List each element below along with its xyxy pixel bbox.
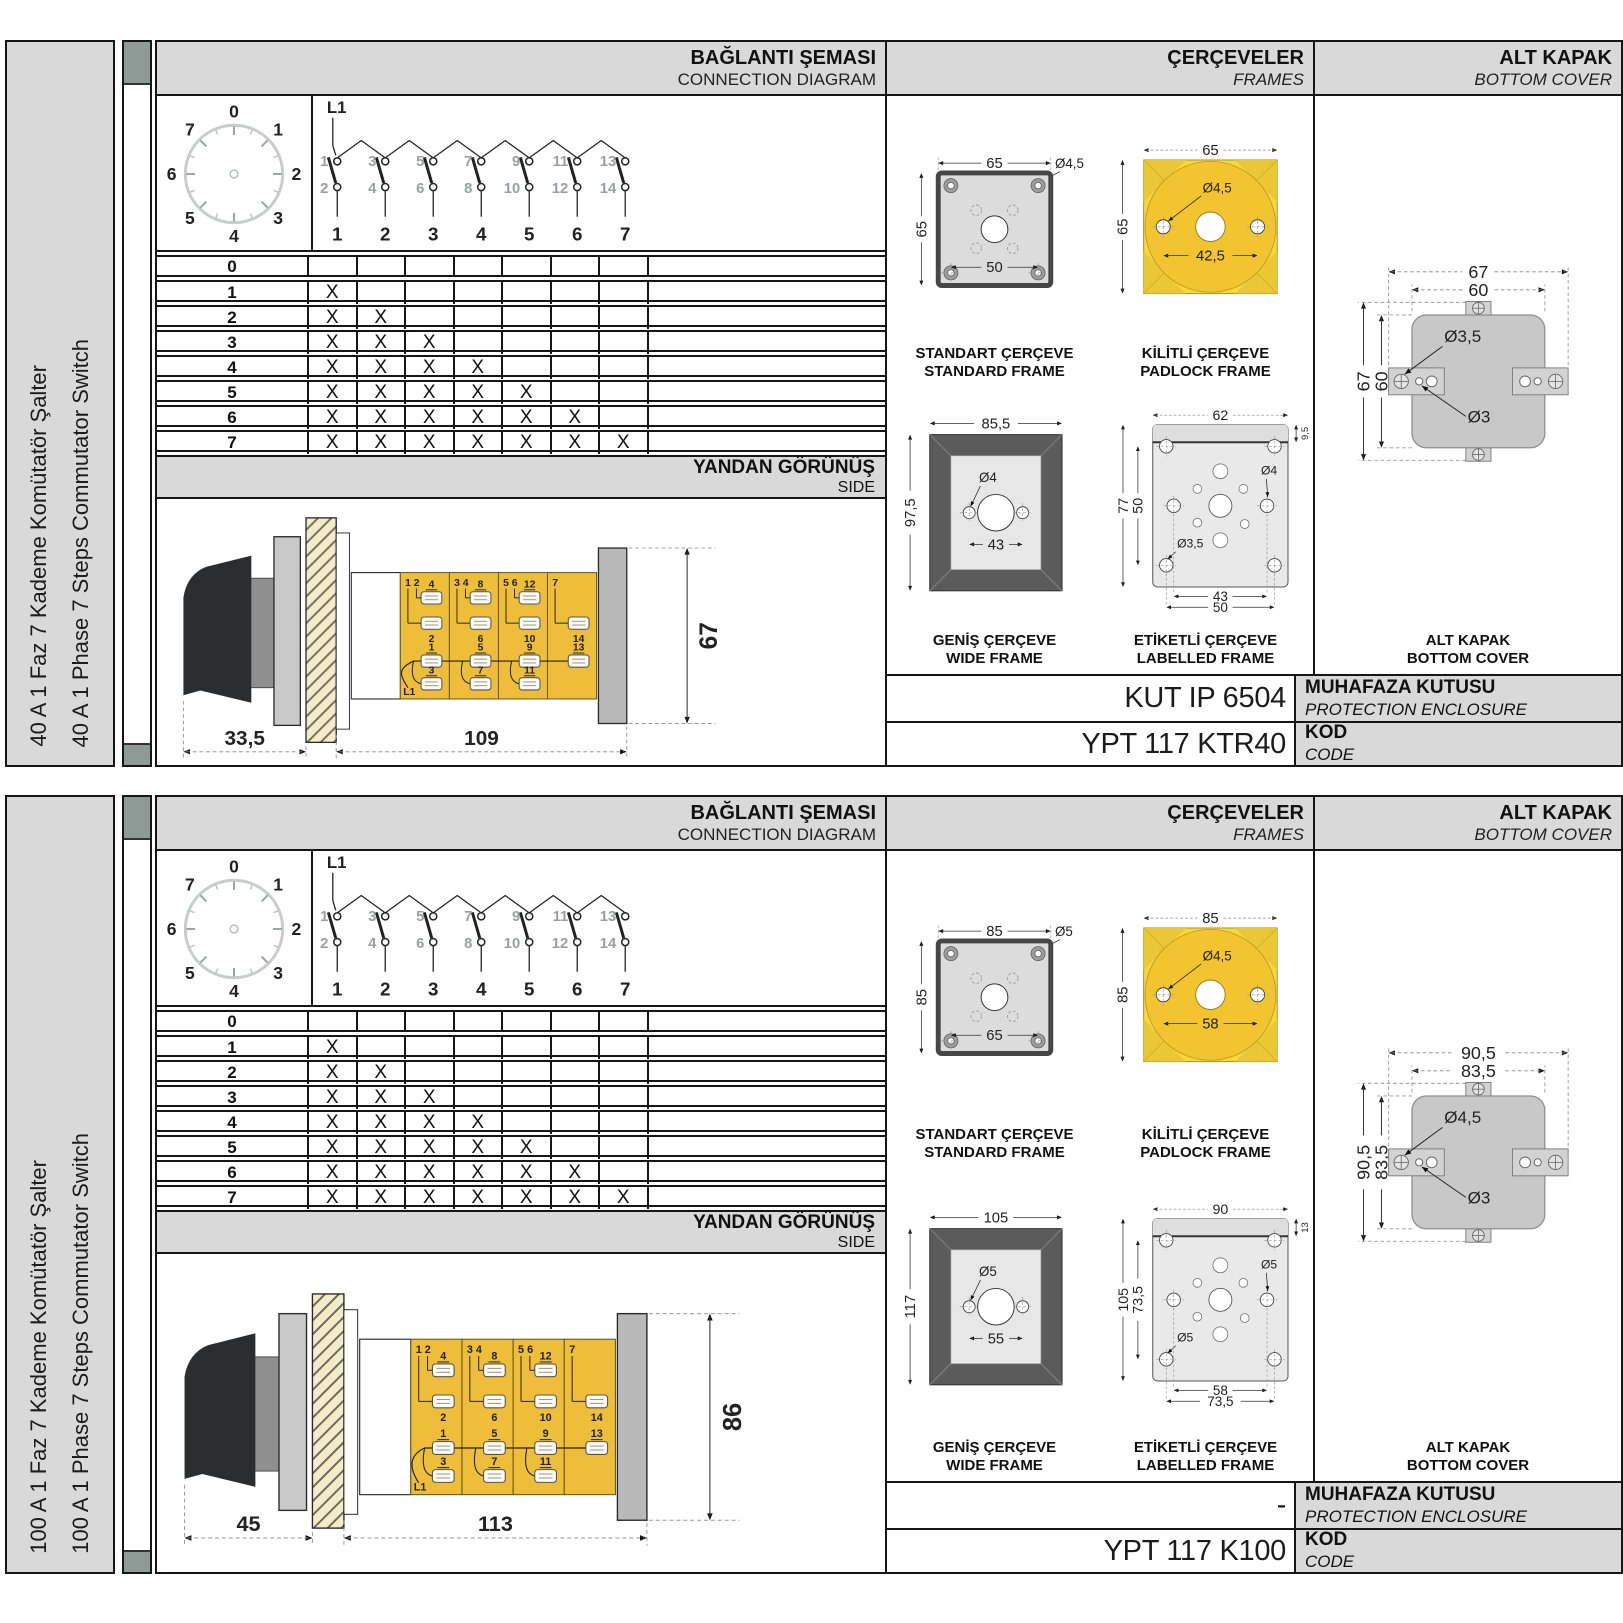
svg-text:43: 43 [988, 537, 1004, 553]
svg-text:14: 14 [600, 936, 617, 952]
svg-text:2: 2 [320, 181, 328, 197]
svg-text:1: 1 [332, 978, 342, 999]
row-label: 4 [157, 357, 309, 379]
svg-text:65: 65 [986, 156, 1002, 172]
svg-text:6: 6 [416, 936, 424, 952]
mark-cell: X [455, 1112, 504, 1134]
svg-text:1: 1 [273, 875, 283, 895]
svg-text:Ø5: Ø5 [1055, 924, 1073, 939]
svg-text:42,5: 42,5 [1196, 249, 1225, 265]
strip-square-top [124, 42, 150, 85]
mark-cell [600, 307, 649, 329]
mark-cell [406, 1012, 455, 1032]
table-row: 1X [157, 1035, 885, 1057]
product-sidebar: 40 A 1 Faz 7 Kademe Komütatör Şalter 40 … [5, 40, 115, 767]
mark-cell [503, 1062, 552, 1084]
svg-text:9: 9 [527, 643, 533, 654]
svg-text:77: 77 [1116, 498, 1132, 514]
svg-text:Ø4: Ø4 [979, 470, 997, 485]
mark-cell [552, 1037, 601, 1059]
mark-cell: X [406, 332, 455, 354]
svg-text:4: 4 [476, 978, 487, 999]
svg-text:1: 1 [273, 120, 283, 140]
svg-text:Ø4,5: Ø4,5 [1445, 1108, 1482, 1127]
mark-cell: X [406, 407, 455, 429]
svg-text:1 2: 1 2 [416, 1344, 431, 1356]
figures-row: 85Ø58565 STANDART ÇERÇEVE STANDARD FRAME… [887, 851, 1621, 1481]
row-label: 3 [157, 332, 309, 354]
svg-text:12: 12 [552, 936, 569, 952]
binding-strip [122, 40, 152, 767]
mark-cell: X [309, 1062, 358, 1084]
cover-column: 90,583,590,583,5Ø4,5Ø3 ALT KAPAK BOTTOM … [1315, 851, 1621, 1481]
svg-text:97,5: 97,5 [903, 498, 919, 527]
svg-text:60: 60 [1469, 280, 1489, 300]
table-row: 5XXXXX [157, 380, 885, 402]
bottom-cover-caption: ALT KAPAK BOTTOM COVER [1333, 1437, 1602, 1481]
svg-text:6: 6 [416, 181, 424, 197]
svg-text:13: 13 [600, 154, 616, 170]
header-row: BAĞLANTI ŞEMASI CONNECTION DIAGRAM ÇERÇE… [157, 797, 1621, 851]
spare-cell [649, 1187, 886, 1209]
svg-text:L1: L1 [327, 98, 347, 117]
svg-text:Ø4,5: Ø4,5 [1055, 156, 1084, 171]
product-title-tr: 40 A 1 Faz 7 Kademe Komütatör Şalter [26, 365, 52, 747]
mark-cell [552, 332, 601, 354]
dial-row: 01234567 L112134256378491051112613147 [157, 96, 885, 252]
code-value: YPT 117 K100 [887, 1530, 1294, 1572]
code-row: YPT 117 KTR40 KOD CODE [887, 721, 1621, 765]
mark-cell: X [309, 407, 358, 429]
mark-cell [503, 257, 552, 277]
wide-frame-drawing: 85,597,5Ø443 [889, 387, 1100, 630]
wide-frame-caption: GENİŞ ÇERÇEVE WIDE FRAME [889, 1437, 1100, 1481]
padlock-frame-figure: 6565Ø4,542,5 [1100, 100, 1311, 343]
figures-row: 65Ø4,56550 STANDART ÇERÇEVE STANDARD FRA… [887, 96, 1621, 674]
svg-text:Ø4,5: Ø4,5 [1203, 948, 1232, 963]
wide-frame-figure: 85,597,5Ø443 [889, 387, 1100, 630]
header-row: BAĞLANTI ŞEMASI CONNECTION DIAGRAM ÇERÇE… [157, 42, 1621, 96]
mark-cell [552, 257, 601, 277]
header-connection: BAĞLANTI ŞEMASI CONNECTION DIAGRAM [157, 797, 887, 849]
svg-text:65: 65 [1116, 219, 1132, 235]
strip-square-bottom [124, 743, 150, 765]
binding-strip [122, 795, 152, 1574]
svg-text:67: 67 [1469, 262, 1489, 282]
spare-cell [649, 307, 886, 329]
svg-text:9: 9 [512, 154, 520, 170]
header-connection-en: CONNECTION DIAGRAM [678, 825, 876, 845]
mark-cell: X [309, 382, 358, 404]
mark-cell [600, 1087, 649, 1109]
header-connection-en: CONNECTION DIAGRAM [678, 70, 876, 90]
row-label: 0 [157, 1012, 309, 1032]
svg-text:65: 65 [914, 221, 930, 237]
mark-cell: X [358, 432, 407, 454]
svg-text:3 4: 3 4 [467, 1344, 482, 1356]
mark-cell [503, 1087, 552, 1109]
svg-text:12: 12 [524, 579, 536, 590]
code-label-en: CODE [1305, 745, 1621, 765]
padlock-frame-caption: KİLİTLİ ÇERÇEVE PADLOCK FRAME [1100, 1124, 1311, 1168]
svg-text:90,5: 90,5 [1461, 1043, 1496, 1063]
svg-text:4: 4 [229, 226, 239, 246]
svg-text:12: 12 [552, 181, 569, 197]
product-title-tr: 100 A 1 Faz 7 Kademe Komütatör Şalter [26, 1160, 52, 1554]
mark-cell: X [503, 1137, 552, 1159]
code-value: YPT 117 KTR40 [887, 723, 1294, 765]
header-frames-en: FRAMES [1233, 70, 1304, 90]
header-frames: ÇERÇEVELER FRAMES [887, 797, 1315, 849]
mark-cell [406, 307, 455, 329]
table-row: 0 [157, 255, 885, 277]
side-view-band: YANDAN GÖRÜNÜŞ SIDE [157, 1210, 885, 1254]
svg-text:2: 2 [380, 223, 390, 244]
mark-cell [552, 1062, 601, 1084]
code-label-tr: KOD [1305, 722, 1621, 745]
svg-text:67: 67 [1354, 371, 1374, 391]
table-row: 7XXXXXXX [157, 1185, 885, 1207]
mark-cell [455, 1087, 504, 1109]
standard-frame-figure: 65Ø4,56550 [889, 100, 1100, 343]
svg-text:13: 13 [1300, 1222, 1311, 1233]
wide-frame-fig: 105117Ø555 GENİŞ ÇERÇEVE WIDE FRAME [889, 1168, 1100, 1481]
panel-main: BAĞLANTI ŞEMASI CONNECTION DIAGRAM ÇERÇE… [155, 40, 1623, 767]
svg-text:1: 1 [320, 909, 328, 925]
panel-main: BAĞLANTI ŞEMASI CONNECTION DIAGRAM ÇERÇE… [155, 795, 1623, 1574]
standard-frame-caption-en: STANDARD FRAME [889, 363, 1100, 381]
svg-text:11: 11 [553, 154, 569, 170]
spare-cell [649, 282, 886, 304]
standard-frame-caption-en: STANDARD FRAME [889, 1144, 1100, 1162]
mark-cell: X [309, 357, 358, 379]
svg-text:33,5: 33,5 [225, 727, 265, 750]
svg-text:7: 7 [185, 120, 195, 140]
mark-cell: X [406, 382, 455, 404]
svg-text:11: 11 [540, 1456, 551, 1468]
svg-text:3: 3 [368, 909, 376, 925]
svg-text:0: 0 [229, 856, 239, 876]
svg-text:73,5: 73,5 [1207, 1394, 1233, 1409]
header-cover-tr: ALT KAPAK [1499, 802, 1612, 825]
bottom-cover-caption-tr: ALT KAPAK [1333, 632, 1602, 650]
svg-text:5 6: 5 6 [518, 1344, 533, 1356]
svg-text:50: 50 [986, 260, 1002, 276]
mark-cell [358, 282, 407, 304]
svg-text:67: 67 [696, 622, 723, 649]
mark-cell: X [600, 1187, 649, 1209]
svg-text:7: 7 [464, 154, 472, 170]
svg-text:11: 11 [553, 909, 569, 925]
svg-text:117: 117 [903, 1295, 919, 1319]
dial-figure: 01234567 [157, 96, 313, 250]
product-panel: 40 A 1 Faz 7 Kademe Komütatör Şalter 40 … [5, 40, 1623, 767]
svg-text:10: 10 [540, 1412, 552, 1424]
svg-text:13: 13 [591, 1428, 603, 1440]
mark-cell: X [455, 407, 504, 429]
labelled-frame-drawing: 629,57750Ø4Ø3,54350 [1100, 387, 1311, 630]
mark-cell: X [309, 332, 358, 354]
wide-frame-caption-en: WIDE FRAME [889, 1457, 1100, 1475]
table-row: 2XX [157, 1060, 885, 1082]
mark-cell [600, 1012, 649, 1032]
padlock-frame-caption-en: PADLOCK FRAME [1100, 1144, 1311, 1162]
row-label: 5 [157, 382, 309, 404]
padlock-frame-drawing: 8585Ø4,558 [1100, 855, 1311, 1124]
svg-text:12: 12 [540, 1350, 552, 1362]
product-panel: 100 A 1 Faz 7 Kademe Komütatör Şalter 10… [5, 795, 1623, 1574]
row-label: 6 [157, 1162, 309, 1184]
svg-text:Ø4: Ø4 [1261, 464, 1277, 478]
mark-cell: X [552, 1162, 601, 1184]
mark-cell: X [503, 1187, 552, 1209]
dial-drawing: 01234567 [158, 852, 310, 1004]
enclosure-label-en: PROTECTION ENCLOSURE [1305, 1507, 1621, 1527]
svg-text:1: 1 [429, 643, 435, 654]
svg-text:4: 4 [229, 981, 239, 1001]
svg-text:8: 8 [464, 936, 472, 952]
mark-cell [503, 357, 552, 379]
svg-text:7: 7 [620, 978, 630, 999]
svg-text:2: 2 [291, 919, 301, 939]
svg-text:Ø5: Ø5 [1177, 1331, 1193, 1345]
spare-cell [649, 1087, 886, 1109]
mark-cell: X [406, 357, 455, 379]
mark-cell: X [309, 1162, 358, 1184]
svg-text:L1: L1 [414, 1482, 427, 1494]
product-title-en: 100 A 1 Phase 7 Steps Commutator Switch [68, 1133, 94, 1554]
table-row: 0 [157, 1010, 885, 1032]
mark-cell [552, 357, 601, 379]
svg-text:5: 5 [416, 154, 424, 170]
mark-cell: X [309, 1037, 358, 1059]
mark-cell [600, 1037, 649, 1059]
header-cover: ALT KAPAK BOTTOM COVER [1315, 42, 1621, 94]
enclosure-row: KUT IP 6504 MUHAFAZA KUTUSU PROTECTION E… [887, 674, 1621, 721]
svg-text:6: 6 [491, 1412, 497, 1424]
product-sidebar: 100 A 1 Faz 7 Kademe Komütatör Şalter 10… [5, 795, 115, 1574]
labelled-frame-drawing: 901310573,5Ø5Ø55873,5 [1100, 1168, 1311, 1437]
side-view-band: YANDAN GÖRÜNÜŞ SIDE [157, 455, 885, 499]
enclosure-label-tr: MUHAFAZA KUTUSU [1305, 677, 1621, 700]
table-row: 3XXX [157, 330, 885, 352]
mark-cell [600, 257, 649, 277]
mark-cell: X [455, 1137, 504, 1159]
mark-cell [309, 257, 358, 277]
spare-cell [649, 1112, 886, 1134]
labelled-frame-figure: 901310573,5Ø5Ø55873,5 [1100, 1168, 1311, 1437]
header-connection: BAĞLANTI ŞEMASI CONNECTION DIAGRAM [157, 42, 887, 94]
svg-text:3: 3 [368, 154, 376, 170]
side-view-drawing: 1 242133 486575 6121091171413L14511386 [157, 1254, 885, 1572]
mark-cell [406, 257, 455, 277]
svg-text:7: 7 [185, 875, 195, 895]
svg-text:55: 55 [988, 1331, 1004, 1347]
svg-text:45: 45 [236, 1511, 260, 1536]
padlock-frame-caption-tr: KİLİTLİ ÇERÇEVE [1100, 1126, 1311, 1144]
svg-text:109: 109 [464, 727, 499, 750]
mark-cell: X [503, 432, 552, 454]
padlock-frame-drawing: 6565Ø4,542,5 [1100, 100, 1311, 343]
strip-square-top [124, 797, 150, 840]
mark-cell [552, 1137, 601, 1159]
mark-cell [600, 1137, 649, 1159]
mark-cell: X [358, 1112, 407, 1134]
spare-cell [649, 382, 886, 404]
table-row: 4XXXX [157, 355, 885, 377]
standard-frame-fig: 65Ø4,56550 STANDART ÇERÇEVE STANDARD FRA… [889, 100, 1100, 387]
mark-cell [552, 1087, 601, 1109]
connection-column: 01234567 L112134256378491051112613147 01… [157, 96, 887, 765]
bottom-cover-fig: 90,583,590,583,5Ø4,5Ø3 ALT KAPAK BOTTOM … [1333, 859, 1602, 1481]
product-title-en: 40 A 1 Phase 7 Steps Commutator Switch [68, 339, 94, 747]
svg-text:113: 113 [478, 1511, 513, 1536]
svg-text:3: 3 [440, 1456, 446, 1468]
mark-cell [455, 307, 504, 329]
svg-text:4: 4 [368, 181, 377, 197]
wide-frame-caption-tr: GENİŞ ÇERÇEVE [889, 1439, 1100, 1457]
svg-text:5: 5 [185, 963, 195, 983]
mark-cell [309, 1012, 358, 1032]
mark-cell: X [552, 432, 601, 454]
table-row: 4XXXX [157, 1110, 885, 1132]
row-label: 3 [157, 1087, 309, 1109]
contact-table: 01X2XX3XXX4XXXX5XXXXX6XXXXXX7XXXXXXX [157, 1007, 885, 1210]
svg-text:6: 6 [167, 919, 177, 939]
svg-text:5 6: 5 6 [503, 578, 518, 589]
bottom-cover-figure: 67606760Ø3,5Ø3 [1333, 104, 1602, 630]
cover-column: 67606760Ø3,5Ø3 ALT KAPAK BOTTOM COVER [1315, 96, 1621, 674]
table-row: 3XXX [157, 1085, 885, 1107]
mark-cell: X [358, 332, 407, 354]
svg-text:7: 7 [569, 1344, 575, 1356]
svg-text:L1: L1 [403, 687, 415, 698]
labelled-frame-caption-tr: ETİKETLİ ÇERÇEVE [1100, 1439, 1311, 1457]
svg-text:5: 5 [416, 909, 424, 925]
mark-cell: X [358, 357, 407, 379]
labelled-frame-fig: 629,57750Ø4Ø3,54350 ETİKETLİ ÇERÇEVE LAB… [1100, 387, 1311, 674]
dial-row: 01234567 L112134256378491051112613147 [157, 851, 885, 1007]
code-label: KOD CODE [1294, 1530, 1621, 1572]
header-connection-tr: BAĞLANTI ŞEMASI [690, 802, 876, 825]
mark-cell: X [406, 1137, 455, 1159]
table-row: 5XXXXX [157, 1135, 885, 1157]
header-frames-tr: ÇERÇEVELER [1167, 802, 1304, 825]
enclosure-label: MUHAFAZA KUTUSU PROTECTION ENCLOSURE [1294, 1483, 1621, 1528]
spare-cell [649, 257, 886, 277]
standard-frame-caption-tr: STANDART ÇERÇEVE [889, 345, 1100, 363]
svg-text:3: 3 [273, 208, 283, 228]
mark-cell: X [406, 1162, 455, 1184]
mark-cell [600, 357, 649, 379]
svg-text:58: 58 [1202, 1017, 1218, 1033]
mark-cell [600, 332, 649, 354]
header-connection-tr: BAĞLANTI ŞEMASI [690, 47, 876, 70]
mark-cell [600, 282, 649, 304]
right-column: 65Ø4,56550 STANDART ÇERÇEVE STANDARD FRA… [887, 96, 1621, 765]
mark-cell [552, 382, 601, 404]
header-frames: ÇERÇEVELER FRAMES [887, 42, 1315, 94]
svg-text:4: 4 [368, 936, 377, 952]
mark-cell [455, 1012, 504, 1032]
mark-cell [503, 282, 552, 304]
dial-drawing: 01234567 [158, 97, 310, 249]
mark-cell: X [358, 1162, 407, 1184]
standard-frame-figure: 85Ø58565 [889, 855, 1100, 1124]
bottom-cover-drawing: 90,583,590,583,5Ø4,5Ø3 [1333, 859, 1602, 1437]
mark-cell: X [552, 1187, 601, 1209]
svg-text:0: 0 [229, 101, 239, 121]
svg-text:Ø4,5: Ø4,5 [1203, 180, 1232, 195]
labelled-frame-caption-tr: ETİKETLİ ÇERÇEVE [1100, 632, 1311, 650]
bottom-cover-caption: ALT KAPAK BOTTOM COVER [1333, 630, 1602, 674]
mark-cell: X [358, 382, 407, 404]
bottom-cover-drawing: 67606760Ø3,5Ø3 [1333, 104, 1602, 630]
svg-text:86: 86 [719, 1403, 747, 1431]
svg-text:3: 3 [428, 978, 438, 999]
bottom-cover-caption-en: BOTTOM COVER [1333, 1457, 1602, 1475]
mark-cell: X [309, 307, 358, 329]
header-frames-en: FRAMES [1233, 825, 1304, 845]
svg-text:2: 2 [380, 978, 390, 999]
row-label: 7 [157, 1187, 309, 1209]
enclosure-label: MUHAFAZA KUTUSU PROTECTION ENCLOSURE [1294, 676, 1621, 721]
svg-text:105: 105 [984, 1210, 1009, 1226]
svg-text:Ø3,5: Ø3,5 [1177, 537, 1204, 551]
frames-row-2: 85,597,5Ø443 GENİŞ ÇERÇEVE WIDE FRAME 62… [889, 387, 1311, 674]
svg-text:73,5: 73,5 [1131, 1286, 1147, 1314]
mark-cell: X [600, 432, 649, 454]
mark-cell [455, 282, 504, 304]
labelled-frame-caption-en: LABELLED FRAME [1100, 650, 1311, 668]
standard-frame-drawing: 85Ø58565 [889, 855, 1100, 1124]
mark-cell [503, 1012, 552, 1032]
spare-cell [649, 407, 886, 429]
svg-text:8: 8 [478, 579, 484, 590]
side-view-band-tr: YANDAN GÖRÜNÜŞ [693, 1212, 875, 1234]
mark-cell [552, 1012, 601, 1032]
svg-text:90,5: 90,5 [1354, 1145, 1374, 1180]
spare-cell [649, 1062, 886, 1084]
code-label-tr: KOD [1305, 1529, 1621, 1552]
mark-cell: X [309, 1137, 358, 1159]
header-cover: ALT KAPAK BOTTOM COVER [1315, 797, 1621, 849]
mark-cell: X [309, 1112, 358, 1134]
mark-cell: X [358, 1087, 407, 1109]
svg-text:85: 85 [986, 924, 1002, 940]
row-label: 6 [157, 407, 309, 429]
svg-text:2: 2 [320, 936, 328, 952]
svg-text:5: 5 [185, 208, 195, 228]
svg-text:9: 9 [543, 1428, 549, 1440]
standard-frame-caption: STANDART ÇERÇEVE STANDARD FRAME [889, 1124, 1100, 1168]
header-cover-en: BOTTOM COVER [1474, 825, 1612, 845]
right-column: 85Ø58565 STANDART ÇERÇEVE STANDARD FRAME… [887, 851, 1621, 1572]
row-label: 0 [157, 257, 309, 277]
labelled-frame-caption-en: LABELLED FRAME [1100, 1457, 1311, 1475]
side-view-drawing: 1 242133 486575 6121091171413L133,510967 [157, 499, 885, 765]
spare-cell [649, 1037, 886, 1059]
svg-text:11: 11 [524, 665, 535, 676]
mark-cell [552, 1112, 601, 1134]
mark-cell: X [309, 1187, 358, 1209]
mark-cell [406, 1062, 455, 1084]
mark-cell [455, 332, 504, 354]
svg-text:83,5: 83,5 [1461, 1061, 1496, 1081]
dial-figure: 01234567 [157, 851, 313, 1005]
enclosure-row: - MUHAFAZA KUTUSU PROTECTION ENCLOSURE [887, 1481, 1621, 1528]
padlock-frame-caption-tr: KİLİTLİ ÇERÇEVE [1100, 345, 1311, 363]
